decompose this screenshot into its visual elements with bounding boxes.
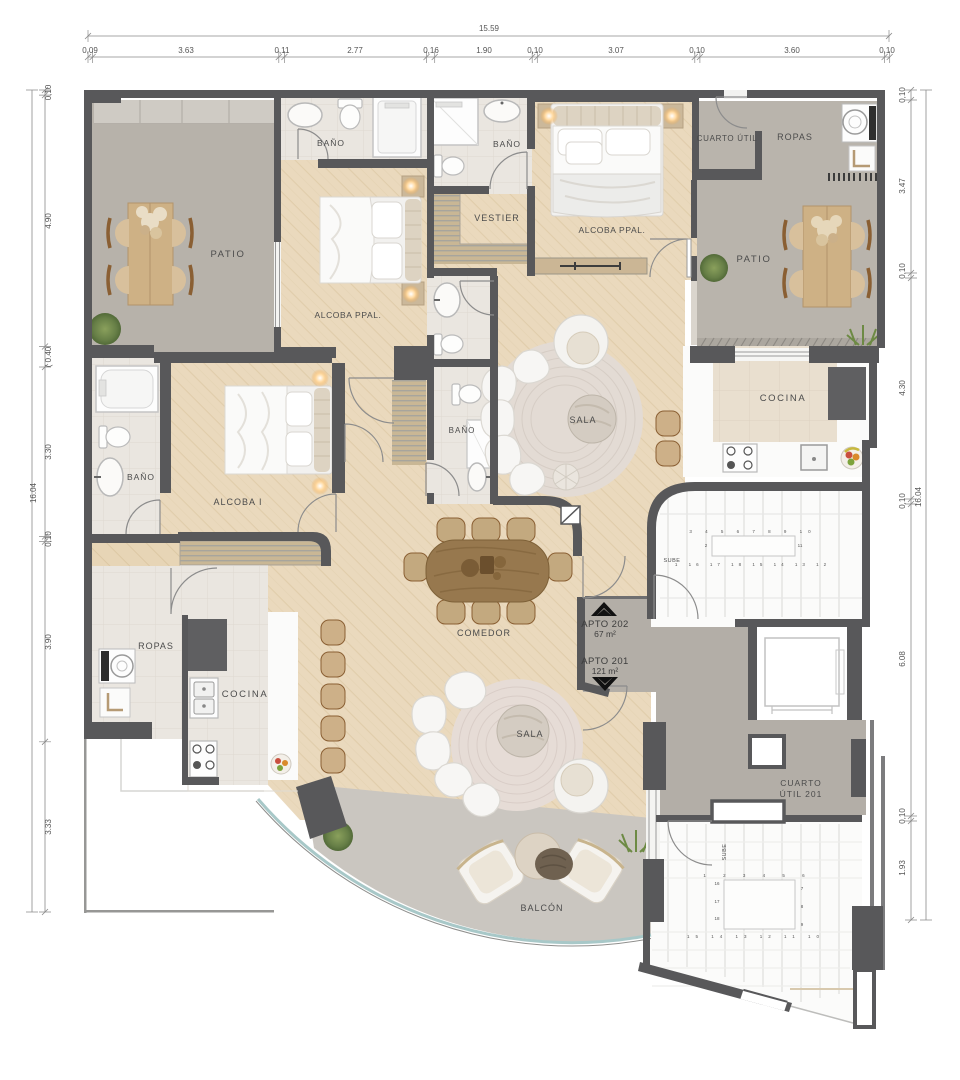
svg-text:CUARTO: CUARTO: [780, 778, 822, 788]
svg-text:15.59: 15.59: [479, 24, 500, 33]
svg-text:0,09: 0,09: [82, 46, 98, 55]
svg-text:3.30: 3.30: [44, 444, 53, 460]
svg-text:16: 16: [714, 881, 720, 886]
svg-text:0,10: 0,10: [879, 46, 895, 55]
svg-text:( 0.40: ( 0.40: [44, 346, 53, 367]
svg-text:3.33: 3.33: [44, 819, 53, 835]
svg-text:COMEDOR: COMEDOR: [457, 628, 511, 638]
svg-text:COCINA: COCINA: [760, 393, 807, 404]
svg-text:4.90: 4.90: [44, 213, 53, 229]
svg-text:0,10: 0,10: [898, 808, 907, 824]
svg-text:0,10: 0,10: [898, 493, 907, 509]
svg-text:COCINA: COCINA: [222, 689, 269, 700]
svg-text:BALCÓN: BALCÓN: [520, 903, 563, 913]
svg-text:ÚTIL 201: ÚTIL 201: [780, 789, 823, 799]
svg-text:2.77: 2.77: [347, 46, 363, 55]
svg-text:1 2 3 4 5 6: 1 2 3 4 5 6: [703, 873, 812, 878]
svg-text:BAÑO: BAÑO: [449, 426, 476, 435]
svg-text:17: 17: [714, 899, 720, 904]
svg-text:0,10: 0,10: [689, 46, 705, 55]
svg-text:ALCOBA I: ALCOBA I: [213, 497, 262, 507]
svg-text:0,10: 0,10: [527, 46, 543, 55]
svg-text:0,10: 0,10: [898, 87, 907, 103]
svg-text:3 4 5 6 7 8 9 10: 3 4 5 6 7 8 9 10: [689, 529, 816, 534]
svg-text:1.90: 1.90: [476, 46, 492, 55]
svg-text:0,10: 0,10: [44, 531, 53, 547]
svg-text:BAÑO: BAÑO: [493, 139, 521, 149]
svg-text:0,16: 0,16: [423, 46, 439, 55]
svg-text:VESTIER: VESTIER: [474, 213, 520, 223]
svg-text:SALA: SALA: [569, 415, 596, 425]
svg-text:15 14 13 12 11 10: 15 14 13 12 11 10: [687, 934, 825, 939]
svg-text:ALCOBA PPAL.: ALCOBA PPAL.: [578, 225, 645, 235]
svg-text:PATIO: PATIO: [210, 249, 245, 260]
svg-text:ROPAS: ROPAS: [138, 641, 174, 651]
svg-text:CUARTO ÚTIL: CUARTO ÚTIL: [697, 134, 758, 143]
svg-text:3.90: 3.90: [44, 634, 53, 650]
svg-text:3.07: 3.07: [608, 46, 624, 55]
svg-text:0,10: 0,10: [44, 84, 53, 100]
svg-text:PATIO: PATIO: [736, 254, 771, 265]
svg-text:3.63: 3.63: [178, 46, 194, 55]
svg-text:4.30: 4.30: [898, 380, 907, 396]
svg-text:67 m²: 67 m²: [594, 629, 616, 639]
svg-text:BAÑO: BAÑO: [127, 472, 155, 482]
svg-text:3.47: 3.47: [898, 178, 907, 194]
svg-text:1 16 17 18 15 14 13 12: 1 16 17 18 15 14 13 12: [675, 562, 831, 567]
svg-text:BAÑO: BAÑO: [317, 138, 345, 148]
svg-text:SUBE: SUBE: [722, 844, 728, 861]
svg-text:SALA: SALA: [516, 729, 543, 739]
svg-text:6.08: 6.08: [898, 651, 907, 667]
svg-text:0,11: 0,11: [275, 46, 291, 55]
svg-text:18: 18: [714, 916, 720, 921]
svg-text:11: 11: [798, 543, 803, 548]
svg-text:121 m²: 121 m²: [592, 666, 619, 676]
svg-text:1.93: 1.93: [898, 860, 907, 876]
svg-text:0,10: 0,10: [898, 263, 907, 279]
svg-text:ROPAS: ROPAS: [777, 132, 813, 142]
svg-text:ALCOBA PPAL.: ALCOBA PPAL.: [314, 310, 381, 320]
svg-text:16.04: 16.04: [914, 486, 923, 507]
svg-text:16.04: 16.04: [29, 482, 38, 503]
svg-text:3.60: 3.60: [784, 46, 800, 55]
